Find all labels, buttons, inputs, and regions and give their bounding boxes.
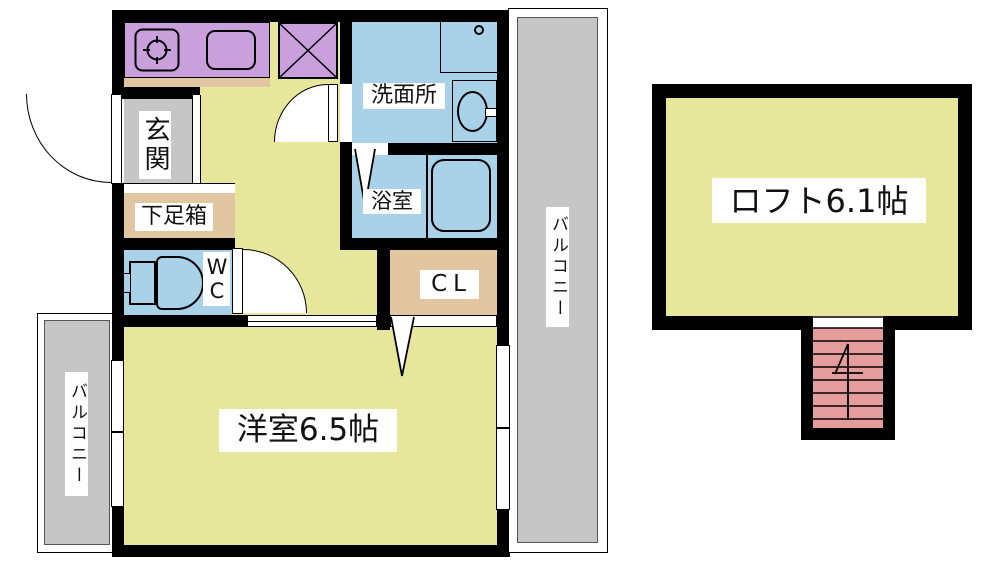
bathroom-label: 浴室 <box>363 189 421 214</box>
entrance-door-arc <box>26 94 111 183</box>
sliding-door <box>247 315 377 327</box>
entrance-door-leaf <box>111 94 122 184</box>
window-right-mullion <box>497 427 509 429</box>
main-room-label: 洋室6.5帖 <box>219 409 397 452</box>
wall-bottom <box>112 545 510 557</box>
balcony-right-label: バルコニー <box>546 207 569 327</box>
stairs-wall-bottom <box>801 428 895 440</box>
kitchen-sink-icon <box>206 30 256 70</box>
entrance-step-edge <box>124 183 235 193</box>
wall-top <box>112 10 510 22</box>
wall-entrance-top <box>112 87 200 99</box>
bathtub-icon <box>431 159 491 232</box>
washroom-door-opening <box>340 84 352 142</box>
refrigerator-space-icon <box>278 22 338 79</box>
washroom-label: 洗面所 <box>363 83 445 109</box>
wc-label: WC <box>203 252 230 306</box>
washbasin-handle-icon <box>485 108 497 117</box>
sliding-door-track-line <box>248 321 376 322</box>
balcony-left-label: バルコニー <box>65 372 88 496</box>
wall-bath-bottom <box>340 238 510 250</box>
wall-washroom-left-upper <box>340 10 352 84</box>
wall-wc-top <box>112 238 235 250</box>
entrance-label: 玄関 <box>139 111 171 179</box>
bathroom-partition-line <box>426 155 428 238</box>
window-right <box>496 345 510 510</box>
window-left-mullion <box>112 431 123 433</box>
stove-icon <box>134 28 180 72</box>
entrance-inner-opening <box>192 95 201 183</box>
wc-door-leaf <box>232 248 243 314</box>
washing-machine-tap-icon <box>474 25 484 35</box>
closet-folding-door-icon <box>389 317 416 379</box>
closet-label: CL <box>420 270 479 299</box>
washing-machine-icon <box>440 22 497 73</box>
toilet-handle-icon <box>123 273 131 293</box>
shoe-cabinet-label: 下足箱 <box>135 203 213 231</box>
washbasin-icon <box>457 91 488 132</box>
washroom-door-leaf <box>328 84 338 142</box>
loft-label: ロフト6.1帖 <box>712 178 926 223</box>
kitchen-counter-edge <box>124 78 270 87</box>
stairs-icon <box>813 316 883 428</box>
stairs-wall-right <box>883 316 895 440</box>
wall-washroom-left-lower <box>340 142 352 250</box>
toilet-tank-icon <box>129 261 156 305</box>
wall-left-upper <box>112 10 124 95</box>
wall-wc-bottom <box>112 315 247 327</box>
stairs-wall-left <box>801 316 813 440</box>
window-left <box>111 360 124 507</box>
floor-plan: 玄関 下足箱 WC 洗面所 浴室 CL 洋室6.5帖 バルコニー バルコニー ロ… <box>0 0 1000 562</box>
wall-bath-divider <box>388 143 497 155</box>
